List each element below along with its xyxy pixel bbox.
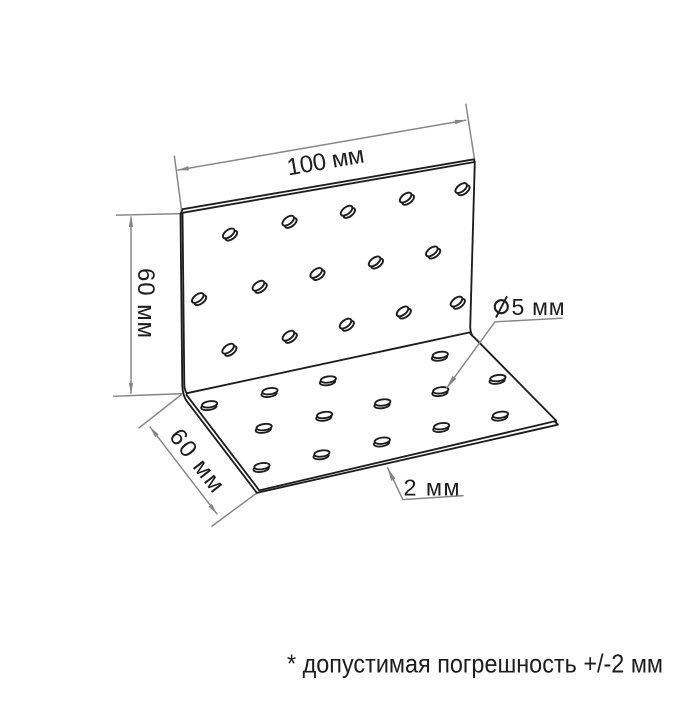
svg-text:60 мм: 60 мм [132,268,159,338]
svg-text:* допустимая погрешность +/-2: * допустимая погрешность +/-2 мм [287,649,663,679]
svg-text:2 мм: 2 мм [404,475,460,501]
svg-text:5 мм: 5 мм [512,294,565,320]
